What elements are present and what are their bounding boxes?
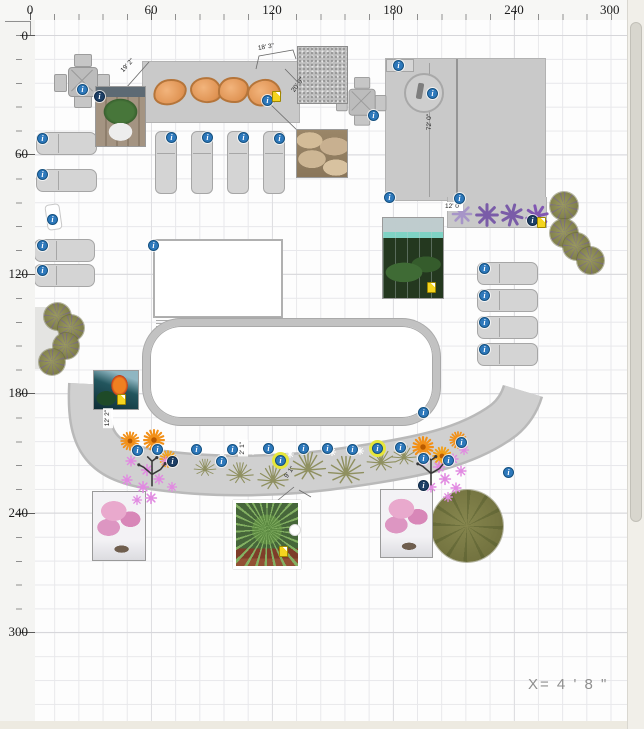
photo-info-icon[interactable]: i — [418, 480, 429, 491]
note-icon[interactable] — [117, 394, 126, 405]
scrollbar-thumb[interactable] — [630, 22, 642, 522]
photo-info-icon[interactable]: i — [94, 91, 105, 102]
ruler-label: 60 — [139, 2, 163, 18]
ruler-label: 120 — [2, 266, 28, 282]
info-icon[interactable]: i — [263, 443, 274, 454]
ruler-label: 180 — [2, 385, 28, 401]
info-icon[interactable]: i — [37, 265, 48, 276]
ruler-label: 0 — [18, 2, 42, 18]
info-icon[interactable]: i — [238, 132, 249, 143]
design-app-window: 18' 3" 19' 2" 20' 0" 72' 0" 12' 0" 12' 2… — [0, 0, 644, 729]
info-icon[interactable]: i — [443, 455, 454, 466]
info-icon[interactable]: i — [454, 193, 465, 204]
note-icon[interactable] — [427, 282, 436, 293]
info-icon[interactable]: i — [456, 437, 467, 448]
ruler-label: 120 — [258, 2, 286, 18]
purple-flower-icon[interactable] — [499, 202, 524, 227]
ruler-label: 240 — [2, 505, 28, 521]
purple-flower-icon[interactable] — [477, 205, 498, 226]
info-icon[interactable]: i — [47, 214, 58, 225]
ruler-left-minor-ticks — [16, 35, 22, 633]
info-icon[interactable]: i — [77, 84, 88, 95]
ruler-top-minor-ticks — [30, 14, 628, 20]
info-icon[interactable]: i — [503, 467, 514, 478]
info-icon-selected[interactable]: i — [372, 443, 383, 454]
ruler-label: 60 — [2, 146, 28, 162]
info-icon[interactable]: i — [418, 407, 429, 418]
note-icon[interactable] — [279, 546, 288, 557]
coordinate-readout: X= 4 ' 8 " — [528, 676, 608, 693]
info-icon[interactable]: i — [479, 263, 490, 274]
info-icon[interactable]: i — [347, 444, 358, 455]
dim-72-0[interactable]: 72' 0" — [425, 114, 435, 130]
info-icon[interactable]: i — [479, 344, 490, 355]
info-icon[interactable]: i — [427, 88, 438, 99]
info-icon[interactable]: i — [148, 240, 159, 251]
info-icon[interactable]: i — [152, 444, 163, 455]
info-icon[interactable]: i — [37, 133, 48, 144]
vertical-scrollbar[interactable] — [627, 0, 644, 729]
info-icon[interactable]: i — [384, 192, 395, 203]
dim-12-2[interactable]: 12' 2" — [103, 408, 113, 428]
ruler-label: 0 — [2, 28, 28, 44]
info-icon[interactable]: i — [166, 132, 177, 143]
info-icon[interactable]: i — [395, 442, 406, 453]
note-icon[interactable] — [537, 217, 546, 228]
info-icon[interactable]: i — [227, 444, 238, 455]
note-icon[interactable] — [272, 91, 281, 102]
ruler-corner-line — [30, 21, 31, 35]
info-icon[interactable]: i — [132, 445, 143, 456]
info-icon[interactable]: i — [167, 456, 178, 467]
info-icon[interactable]: i — [479, 290, 490, 301]
ruler-corner-line — [5, 21, 31, 22]
info-icon[interactable]: i — [37, 240, 48, 251]
dim-2-1[interactable]: 2' 1" — [238, 440, 248, 457]
info-icon[interactable]: i — [393, 60, 404, 71]
ruler-label: 240 — [500, 2, 528, 18]
info-icon[interactable]: i — [216, 456, 227, 467]
info-icon[interactable]: i — [368, 110, 379, 121]
ruler-label: 300 — [600, 2, 628, 18]
ruler-label: 300 — [2, 624, 28, 640]
info-icon-selected[interactable]: i — [275, 455, 286, 466]
info-icon[interactable]: i — [298, 443, 309, 454]
info-icon[interactable]: i — [274, 133, 285, 144]
plant-symbol-layer — [0, 0, 644, 729]
info-icon[interactable]: i — [37, 169, 48, 180]
info-icon[interactable]: i — [191, 444, 202, 455]
horizontal-scrollbar-track[interactable] — [0, 721, 627, 729]
ruler-label: 180 — [379, 2, 407, 18]
info-icon[interactable]: i — [479, 317, 490, 328]
info-icon[interactable]: i — [202, 132, 213, 143]
info-icon[interactable]: i — [418, 453, 429, 464]
info-icon[interactable]: i — [322, 443, 333, 454]
